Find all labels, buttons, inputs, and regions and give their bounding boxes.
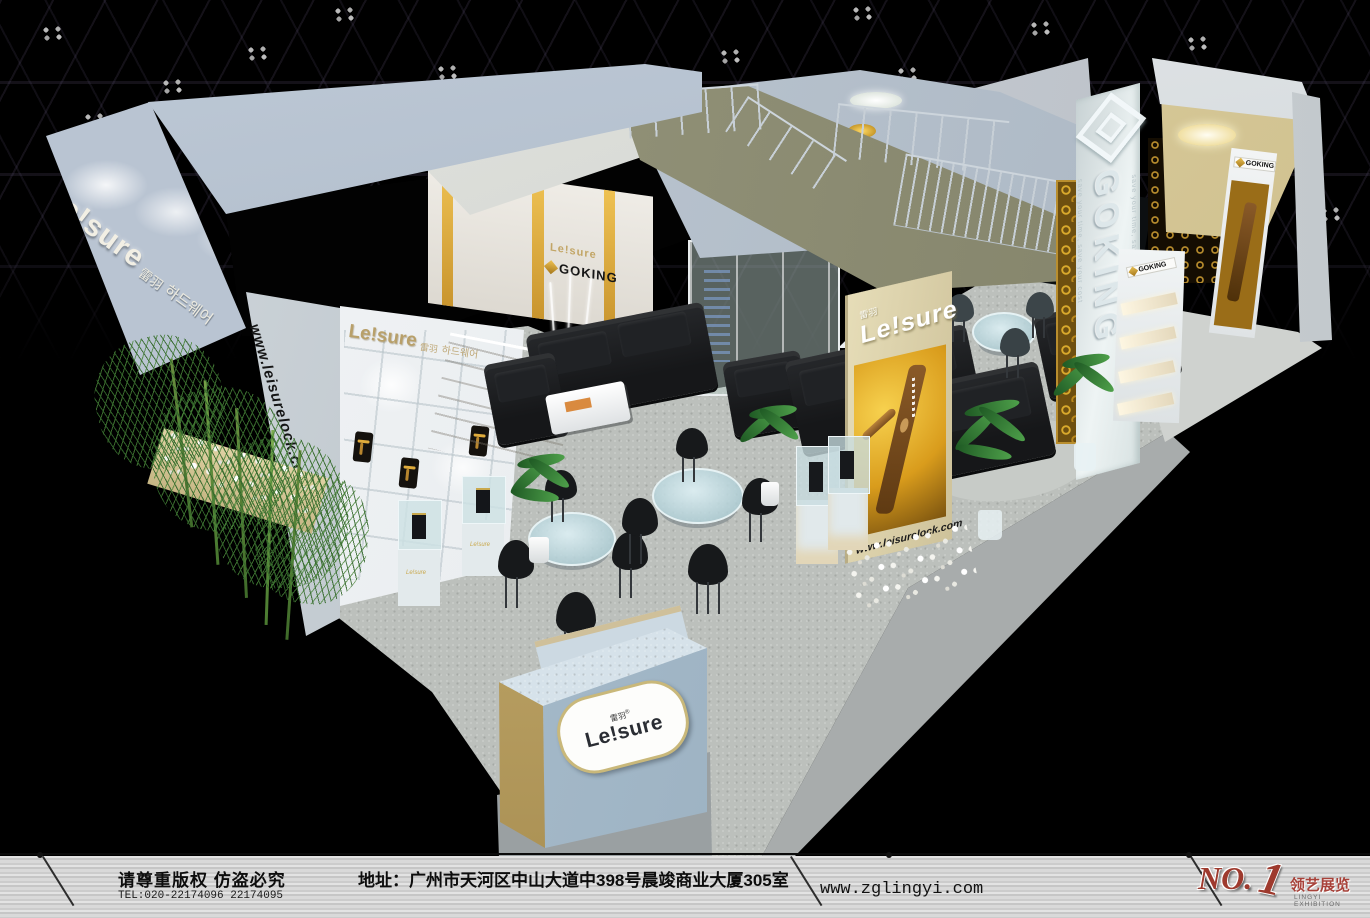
- display-leisure-cn: 雷羽: [419, 340, 439, 355]
- registered-mark: ®: [625, 709, 631, 716]
- ceiling-light-cluster-icon: [1028, 20, 1054, 37]
- ceiling-light-cluster-icon: [332, 6, 358, 23]
- lock-product: [476, 488, 490, 513]
- ceiling-light-cluster-icon: [40, 25, 66, 42]
- pedestal-brand-script: Le!sure: [470, 542, 490, 548]
- lingyi-logo: NO. 1 领艺展览 LINGYI EXHIBITION: [1198, 858, 1363, 916]
- goking-diamond-logo-icon: [1076, 92, 1147, 163]
- potted-palm: [735, 398, 805, 508]
- lock-product: [412, 513, 426, 539]
- bronze-lock-plate: [1226, 202, 1257, 302]
- footer-tel: TEL:020-22174096 22174095: [118, 890, 283, 902]
- lingyi-logo-no: NO.: [1198, 860, 1252, 897]
- lingyi-company-en: LINGYI EXHIBITION: [1294, 894, 1363, 908]
- display-pedestal: [828, 436, 868, 550]
- footer-address: 地址：广州市天河区中山大道中398号晨竣商业大厦305室: [358, 866, 789, 891]
- footer-line-dot: [886, 852, 892, 858]
- lock-product: [840, 451, 854, 479]
- lock-keyhole: [899, 418, 910, 433]
- lock-product: [809, 462, 823, 492]
- glass-vase: [1074, 443, 1096, 471]
- footer-top-line: [0, 853, 1370, 855]
- goking-diamond-icon: [1235, 158, 1245, 168]
- door-handle-display: [398, 457, 419, 489]
- display-pedestal: Le!sure: [398, 500, 440, 606]
- lit-shelf: [1120, 292, 1177, 315]
- black-chair: [676, 428, 708, 482]
- plant-pot: [761, 482, 779, 506]
- goking-sign-text: GOKING: [1245, 160, 1274, 170]
- footer-copyright: 请尊重版权 仿盗必究: [118, 866, 286, 891]
- goking-small-sign: GOKING: [1233, 156, 1276, 172]
- goking-diamond-icon: [1128, 267, 1138, 277]
- black-chair: [688, 544, 728, 614]
- bronze-lock-plate: [875, 365, 928, 514]
- door-handle-display: [352, 431, 373, 463]
- lingyi-logo-one: 1: [1255, 850, 1289, 907]
- pedestal-base: [398, 546, 440, 606]
- gray-chair: [1026, 292, 1054, 338]
- footer-website: www.zglingyi.com: [820, 880, 983, 899]
- plant-pot: [529, 537, 549, 563]
- lit-shelf: [1117, 392, 1174, 415]
- pedestal-brand-script: Le!sure: [406, 570, 426, 576]
- gold-stripe: [604, 190, 615, 330]
- lit-shelf: [1118, 360, 1175, 383]
- gold-stripe: [532, 180, 544, 320]
- glass-vase: [978, 510, 1002, 540]
- column-leisure-lockup: 雷羽 Le!sure: [859, 282, 958, 351]
- ceiling-light-cluster-icon: [718, 48, 744, 65]
- potted-palm: [505, 445, 575, 565]
- lit-shelf: [1119, 326, 1176, 349]
- goking-diamond-inner: [1095, 112, 1126, 143]
- canopy-round-light: [1178, 124, 1236, 146]
- black-chair: [622, 498, 658, 564]
- lingyi-company-cn: 领艺展览: [1290, 874, 1350, 895]
- ceiling-light-cluster-icon: [1185, 35, 1211, 52]
- wall-leisure-logo: Le!sure: [550, 241, 597, 261]
- ceiling-light-cluster-icon: [850, 5, 876, 22]
- goking-sign-text: GOKING: [1138, 261, 1167, 274]
- poster-caption-dashes: [912, 378, 915, 419]
- goking-diamond-icon: [544, 260, 558, 274]
- ceiling-light-cluster-icon: [160, 78, 186, 95]
- goking-small-sign: GOKING: [1126, 257, 1177, 278]
- render-canvas: Le!sure GOKING Le!sure 雷羽 하드웨어 www.leisu…: [0, 0, 1370, 918]
- goking-shelf-unit: GOKING: [1113, 249, 1185, 423]
- brochures: [564, 397, 591, 412]
- pedestal-base: [828, 488, 868, 550]
- ceiling-light-cluster-icon: [245, 45, 271, 62]
